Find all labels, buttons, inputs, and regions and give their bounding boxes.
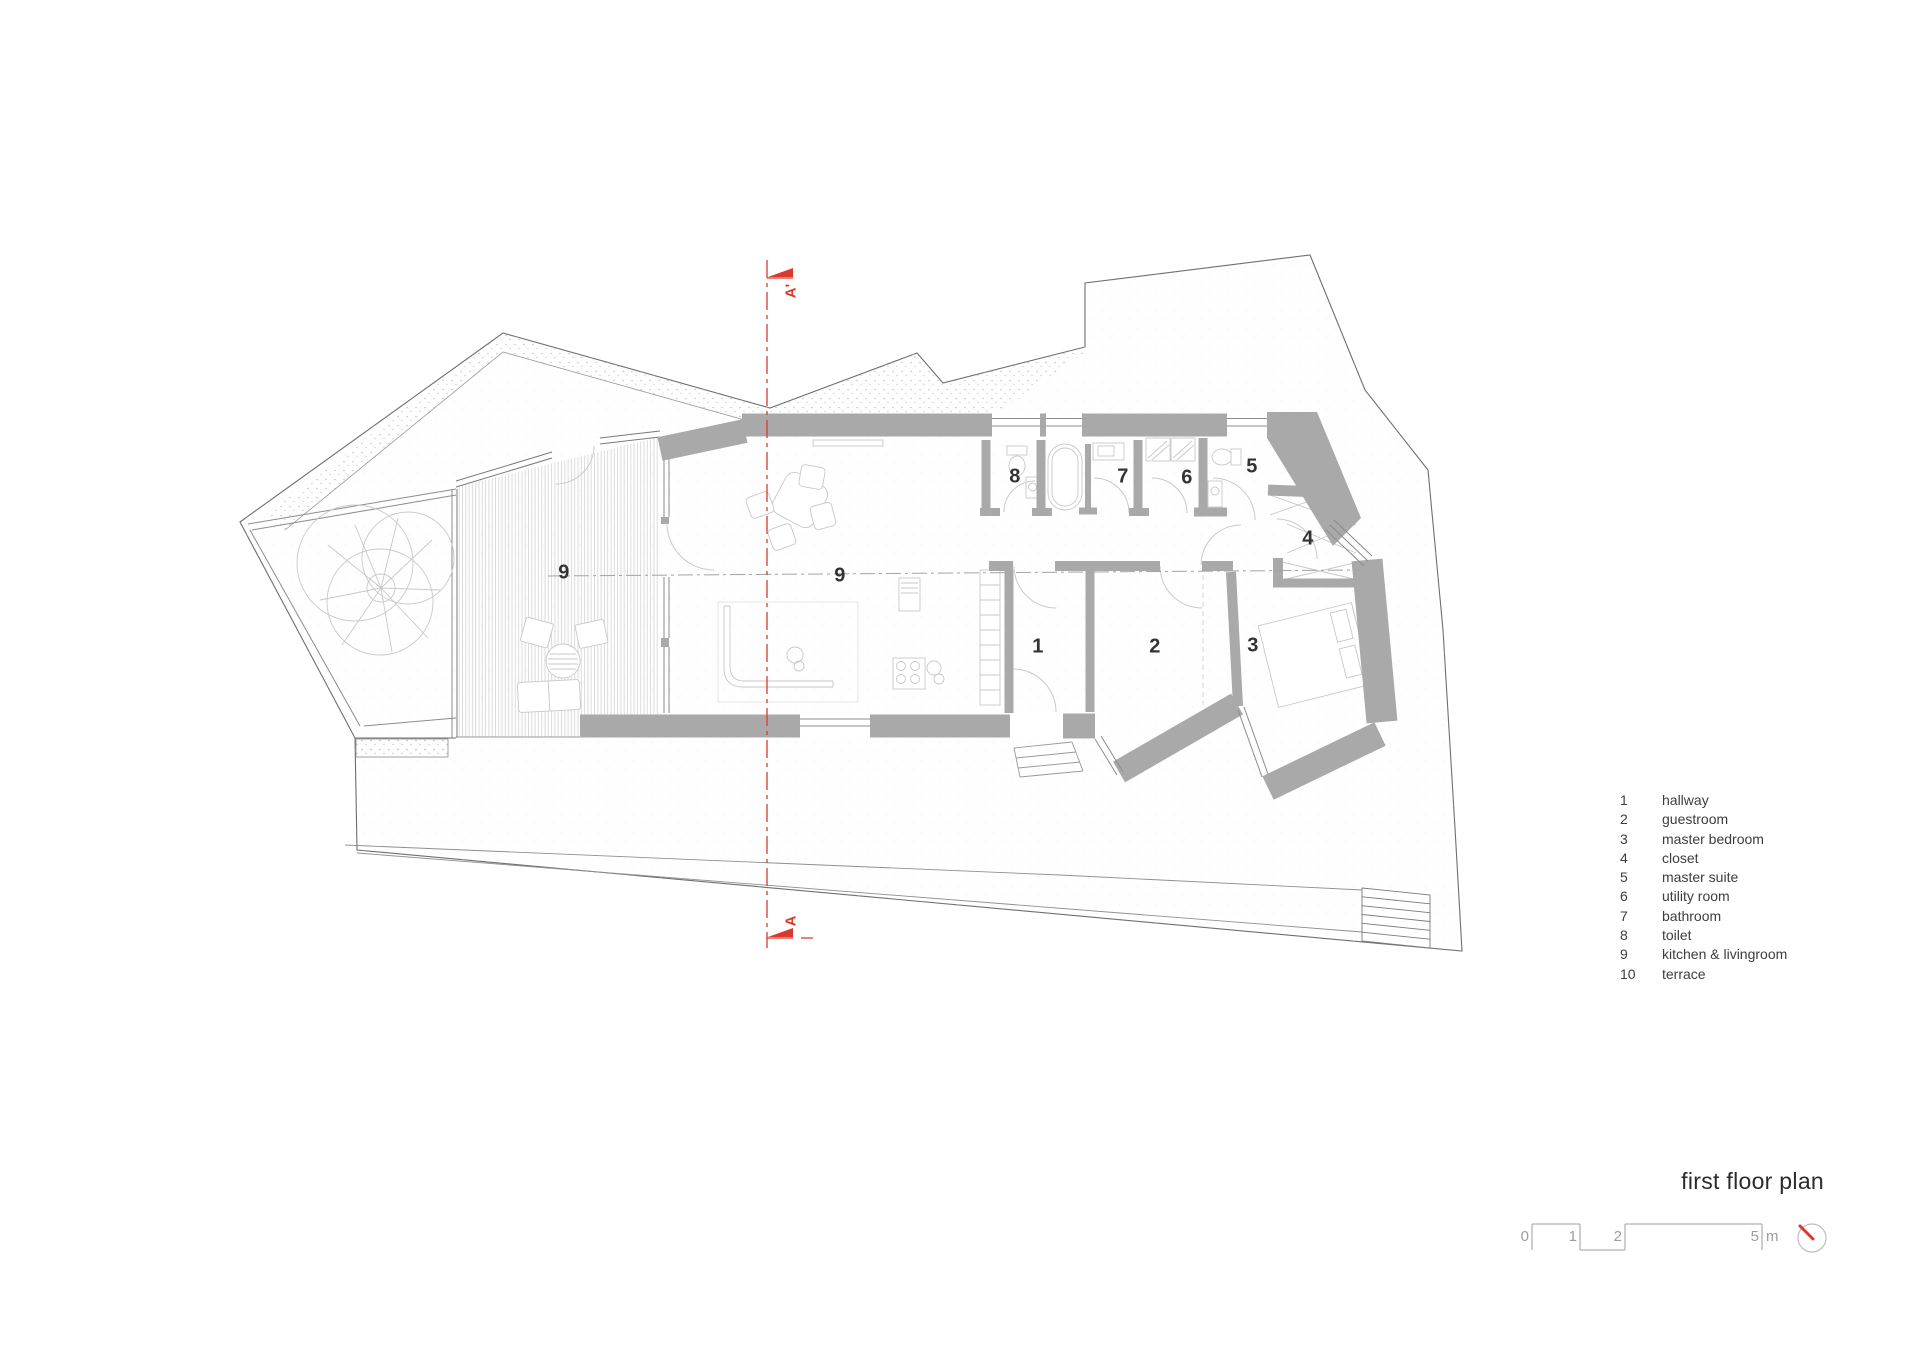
scale-label-1: 1	[1547, 1228, 1577, 1245]
shelving	[980, 570, 1000, 705]
legend-num: 2	[1620, 810, 1662, 829]
page-title: first floor plan	[1638, 1168, 1824, 1195]
toilet-5	[1212, 449, 1232, 465]
legend-num: 10	[1620, 965, 1662, 984]
room-label-closet-4: 4	[1302, 528, 1314, 551]
legend-label: bathroom	[1662, 907, 1721, 926]
room-label-hall-1: 1	[1032, 636, 1044, 659]
legend-label: kitchen & livingroom	[1662, 945, 1787, 964]
scale-label-0: 0	[1499, 1228, 1529, 1245]
legend-num: 9	[1620, 945, 1662, 964]
legend-label: terrace	[1662, 965, 1706, 984]
legend-label: guestroom	[1662, 810, 1728, 829]
legend-row: 6utility room	[1620, 887, 1787, 906]
legend-num: 6	[1620, 887, 1662, 906]
scale-unit: m	[1766, 1228, 1779, 1245]
room-label-guest-2: 2	[1149, 636, 1161, 659]
tv-bench	[813, 440, 883, 446]
site-stairs	[1362, 888, 1430, 948]
legend-label: master bedroom	[1662, 830, 1764, 849]
legend-label: utility room	[1662, 887, 1730, 906]
scale-label-5: 5	[1729, 1228, 1759, 1245]
room-label-master-3: 3	[1247, 635, 1259, 658]
floor-plan-drawing	[0, 0, 1920, 1357]
legend-label: toilet	[1662, 926, 1692, 945]
legend-num: 1	[1620, 791, 1662, 810]
legend-num: 5	[1620, 868, 1662, 887]
toilet-8	[1007, 446, 1027, 455]
legend-label: closet	[1662, 849, 1699, 868]
legend-row: 5master suite	[1620, 868, 1787, 887]
section-label-a-prime: A'	[783, 284, 800, 298]
room-label-bath-7: 7	[1117, 466, 1129, 489]
legend-num: 8	[1620, 926, 1662, 945]
legend-row: 3master bedroom	[1620, 830, 1787, 849]
legend-row: 7bathroom	[1620, 907, 1787, 926]
legend-row: 8toilet	[1620, 926, 1787, 945]
room-label-utility-6: 6	[1181, 467, 1193, 490]
legend-num: 7	[1620, 907, 1662, 926]
room-label-toilet-8: 8	[1009, 466, 1021, 489]
room-label-living-9: 9	[834, 565, 846, 588]
section-label-a: A	[783, 916, 800, 927]
legend-row: 1hallway	[1620, 791, 1787, 810]
north-compass	[1798, 1224, 1826, 1252]
north-needle	[1800, 1226, 1813, 1239]
room-label-terrace-9: 9	[558, 562, 570, 585]
legend-row: 2guestroom	[1620, 810, 1787, 829]
site-boundary	[240, 255, 1462, 951]
room-label-suite-5: 5	[1246, 456, 1258, 479]
legend-label: hallway	[1662, 791, 1709, 810]
legend-row: 4closet	[1620, 849, 1787, 868]
section-arrow-bottom	[768, 928, 793, 937]
scale-label-2: 2	[1592, 1228, 1622, 1245]
legend-num: 4	[1620, 849, 1662, 868]
legend-row: 9kitchen & livingroom	[1620, 945, 1787, 964]
legend-num: 3	[1620, 830, 1662, 849]
legend-label: master suite	[1662, 868, 1738, 887]
legend: 1hallway 2guestroom 3master bedroom 4clo…	[1620, 791, 1787, 984]
drawing-sheet: 9 9 8 7 6 5 4 1 2 3 A' A 1hallway 2guest…	[0, 0, 1920, 1357]
legend-row: 10terrace	[1620, 965, 1787, 984]
section-arrow-top	[768, 268, 793, 277]
gravel-band-west	[356, 739, 448, 757]
